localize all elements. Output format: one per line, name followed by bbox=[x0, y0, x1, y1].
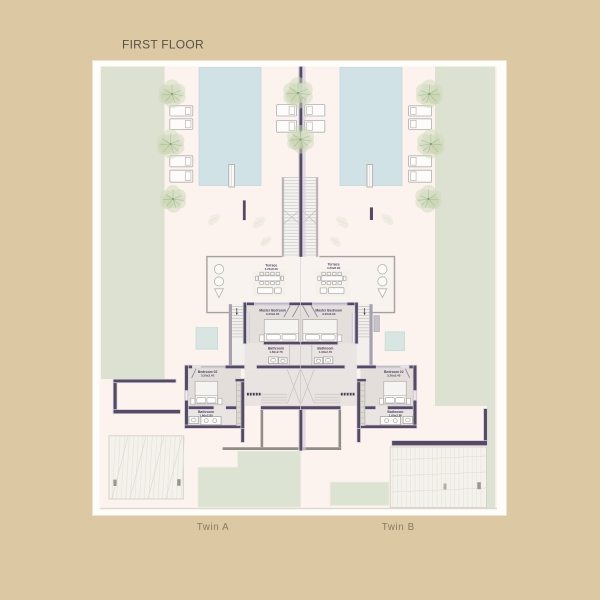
svg-text:3.20x3.45: 3.20x3.45 bbox=[201, 374, 215, 378]
svg-text:FIRST FLOOR: FIRST FLOOR bbox=[122, 37, 204, 51]
svg-text:1.60x2.76: 1.60x2.76 bbox=[319, 350, 333, 354]
svg-text:Twin B: Twin B bbox=[382, 522, 415, 533]
svg-text:Twin A: Twin A bbox=[197, 522, 229, 533]
svg-text:4.20x8.00: 4.20x8.00 bbox=[327, 266, 341, 270]
svg-text:3.20x6.00: 3.20x6.00 bbox=[266, 312, 280, 316]
svg-text:1.60x2.80: 1.60x2.80 bbox=[199, 414, 213, 418]
svg-text:1.60x2.80: 1.60x2.80 bbox=[389, 414, 403, 418]
svg-text:1.60x2.76: 1.60x2.76 bbox=[269, 350, 283, 354]
svg-text:3.20x6.00: 3.20x6.00 bbox=[322, 312, 336, 316]
svg-text:3.20x3.45: 3.20x3.45 bbox=[387, 374, 401, 378]
svg-text:4.20x8.00: 4.20x8.00 bbox=[265, 267, 279, 271]
